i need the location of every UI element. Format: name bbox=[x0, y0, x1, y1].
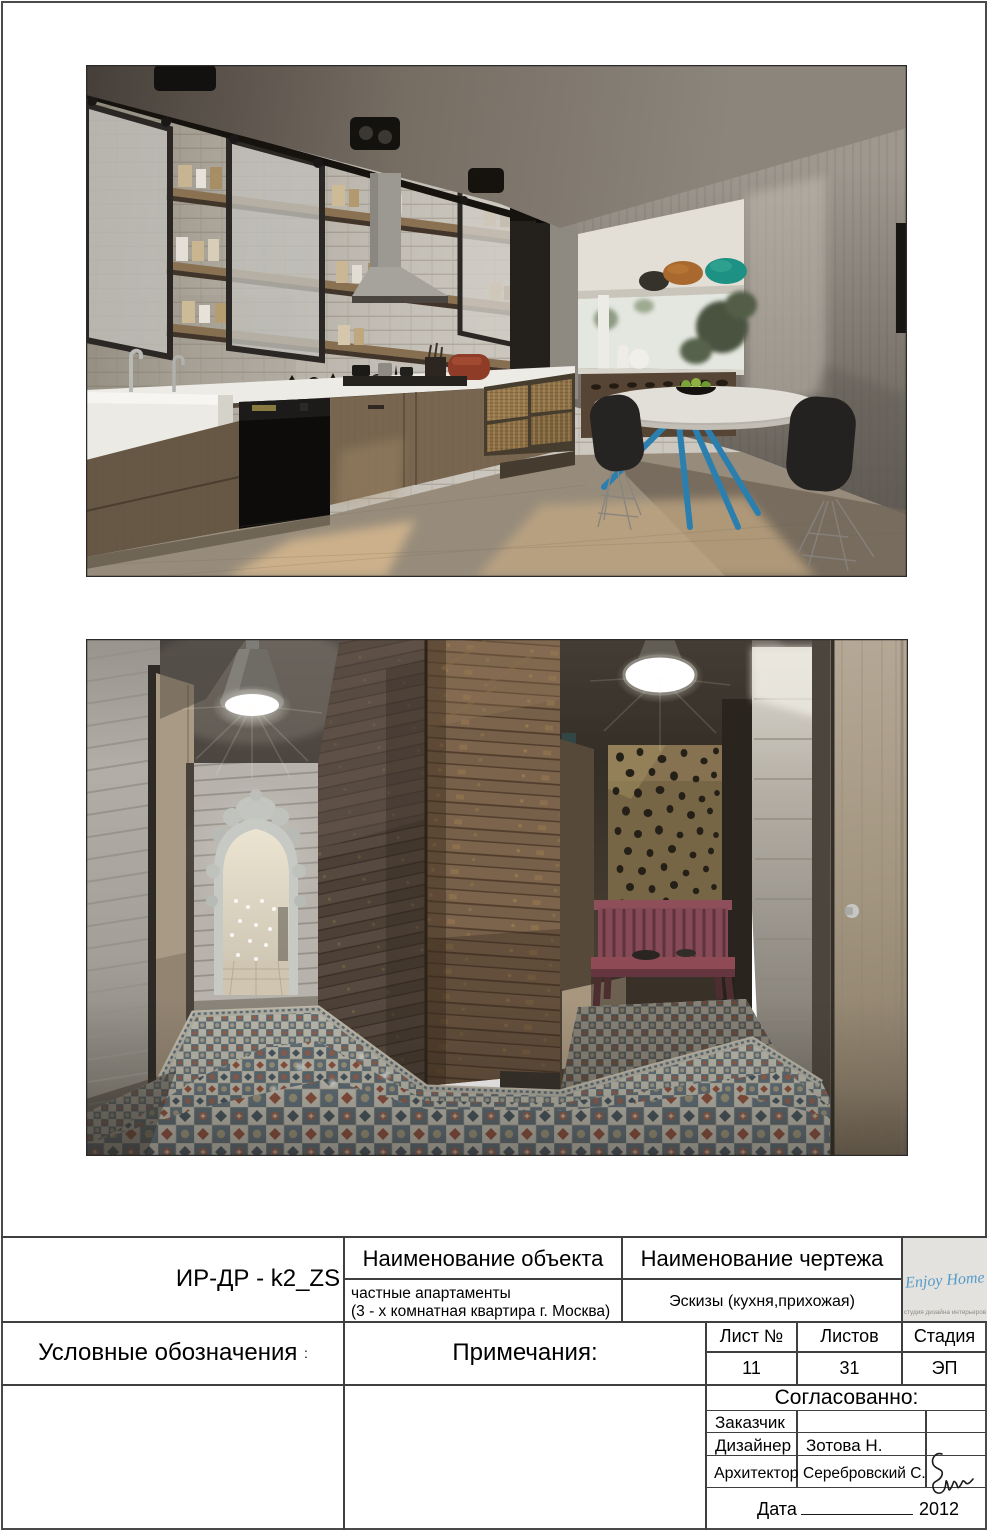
svg-text:Enjoy Home: Enjoy Home bbox=[904, 1269, 986, 1292]
svg-text:студия дизайна интерьеров: студия дизайна интерьеров bbox=[904, 1308, 987, 1316]
